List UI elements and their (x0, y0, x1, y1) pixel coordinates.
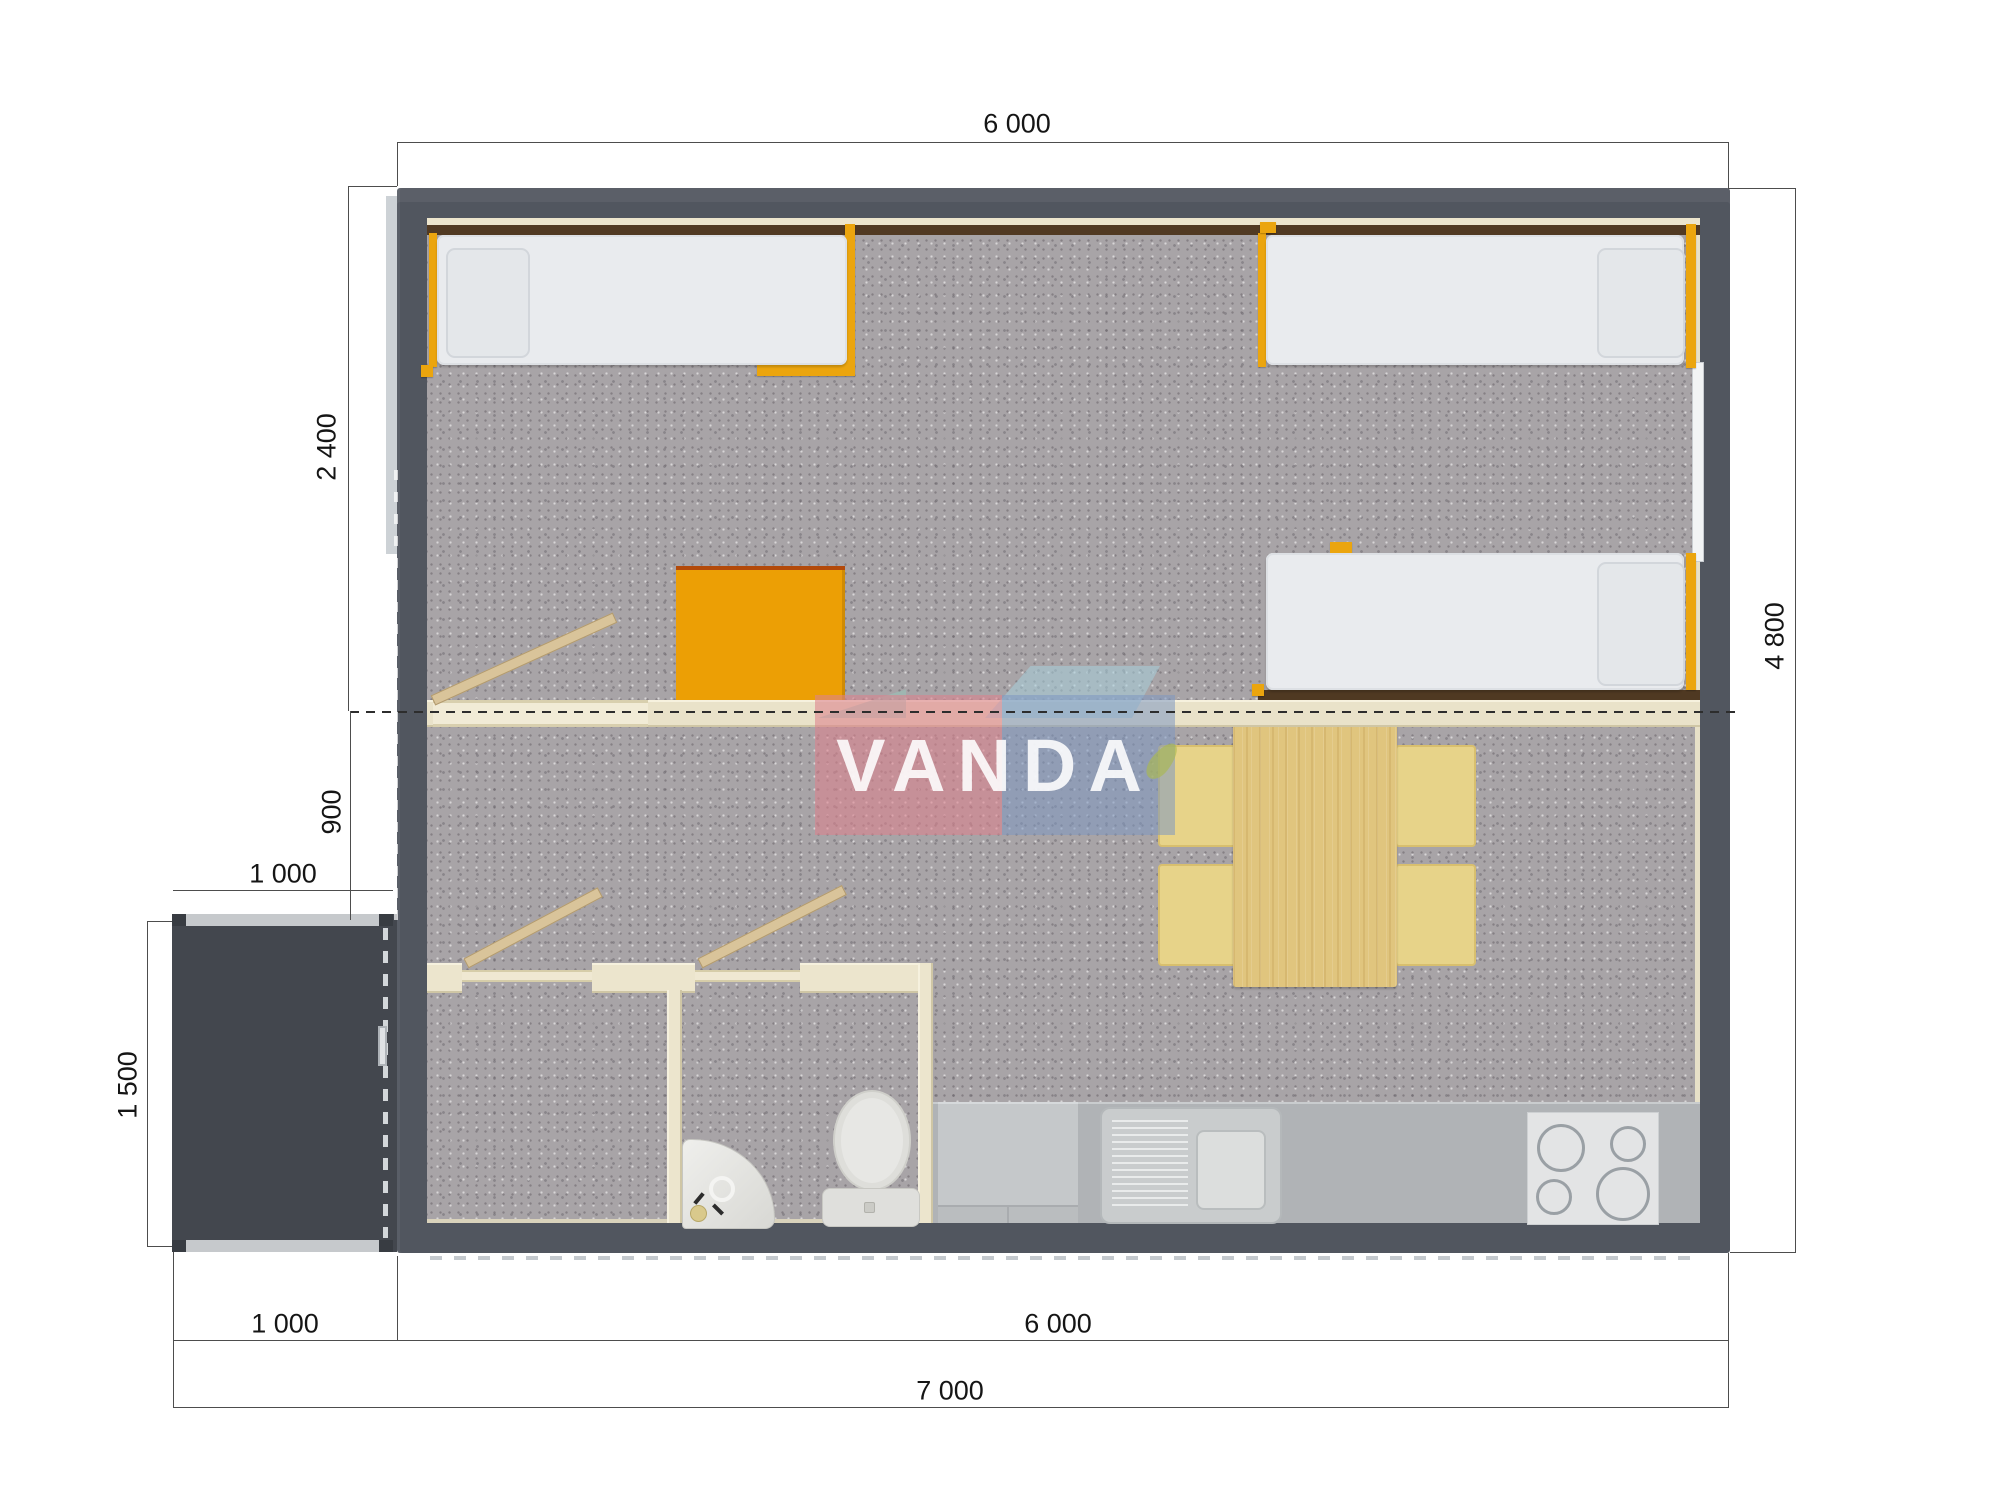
dimension-extension (1730, 1252, 1795, 1253)
partition-wall (918, 963, 933, 1223)
dining-table-icon (1233, 720, 1397, 987)
bed-frame (1686, 553, 1696, 690)
dimension-label-porch-depth: 1 500 (113, 1051, 144, 1119)
burner-icon (1537, 1124, 1585, 1172)
chair-icon (1395, 864, 1476, 966)
dimension-line (147, 921, 148, 1247)
sink-basin (1196, 1130, 1266, 1210)
door-threshold (695, 970, 800, 982)
door-threshold (462, 970, 592, 982)
toilet-icon (833, 1090, 911, 1191)
porch-post (379, 1240, 393, 1252)
dimension-line (397, 142, 1728, 143)
dimension-line (173, 1340, 1728, 1341)
door-handle-icon (378, 1026, 387, 1066)
desk-icon (676, 566, 845, 700)
dimension-label-hall-depth: 900 (317, 789, 348, 834)
dimension-extension (1728, 1253, 1729, 1408)
porch-post (172, 914, 186, 926)
partition-wall (800, 963, 933, 993)
watermark-logo: VANDA (810, 695, 1180, 835)
porch (172, 914, 397, 1252)
burner-icon (1536, 1179, 1572, 1215)
dimension-extension (1728, 188, 1795, 189)
dimension-extension (147, 1246, 172, 1247)
bed-frame (429, 233, 437, 367)
faucet-icon (709, 1176, 735, 1202)
burner-icon (1596, 1167, 1650, 1221)
wall-plate (427, 225, 1700, 235)
dimension-line (173, 1407, 1728, 1408)
bed-frame (1686, 224, 1696, 368)
chair-icon (1158, 864, 1239, 966)
dimension-label-total-width: 7 000 (916, 1376, 984, 1407)
entrance-door-line (383, 928, 388, 1238)
bed-frame (1258, 233, 1266, 367)
partition-wall (667, 990, 682, 1223)
cabinet-seam (1007, 1205, 1009, 1223)
porch-step (172, 914, 393, 926)
siding-joint-marks (430, 1256, 1700, 1260)
burner-icon (1610, 1126, 1646, 1162)
dimension-line (173, 890, 393, 891)
dimension-extension (147, 921, 172, 922)
siding-joint-marks (394, 470, 398, 920)
flush-button (864, 1202, 875, 1213)
window-icon (1692, 362, 1704, 562)
dimension-extension (397, 142, 398, 186)
dimension-line (1795, 188, 1796, 1253)
bed-frame (421, 365, 433, 377)
dimension-label-top-width: 6 000 (983, 109, 1051, 140)
drainboard (1112, 1120, 1188, 1210)
door-opening (433, 700, 648, 727)
dimension-extension (173, 1252, 174, 1408)
pillow-icon (1597, 248, 1685, 358)
pillow-icon (446, 248, 530, 358)
porch-step (172, 1240, 393, 1252)
floorplan-canvas: VANDA 6 000 2 400 900 1 000 1 500 4 800 … (0, 0, 2000, 1502)
partition-wall (592, 963, 695, 993)
bed-frame (1260, 222, 1276, 233)
dimension-extension (397, 1256, 398, 1340)
dimension-line (350, 711, 351, 920)
wall-lining (427, 218, 1700, 225)
dimension-label-porch-width-top: 1 000 (249, 859, 317, 890)
porch-post (172, 1240, 186, 1252)
bed-frame (1252, 684, 1264, 696)
porch-post (379, 914, 393, 926)
dimension-extension (1728, 142, 1729, 188)
dimension-label-bedroom-depth: 2 400 (312, 413, 343, 481)
pillow-icon (1597, 562, 1685, 686)
dimension-extension (348, 186, 397, 187)
partition-wall (427, 963, 462, 993)
section-line (350, 711, 1742, 713)
chair-icon (1395, 745, 1476, 847)
dimension-label-building-width-bottom: 6 000 (1024, 1309, 1092, 1340)
dimension-label-building-depth: 4 800 (1760, 602, 1791, 670)
soap-bottle-icon (690, 1205, 707, 1222)
dimension-line (348, 186, 349, 711)
dimension-label-porch-width-bottom: 1 000 (251, 1309, 319, 1340)
